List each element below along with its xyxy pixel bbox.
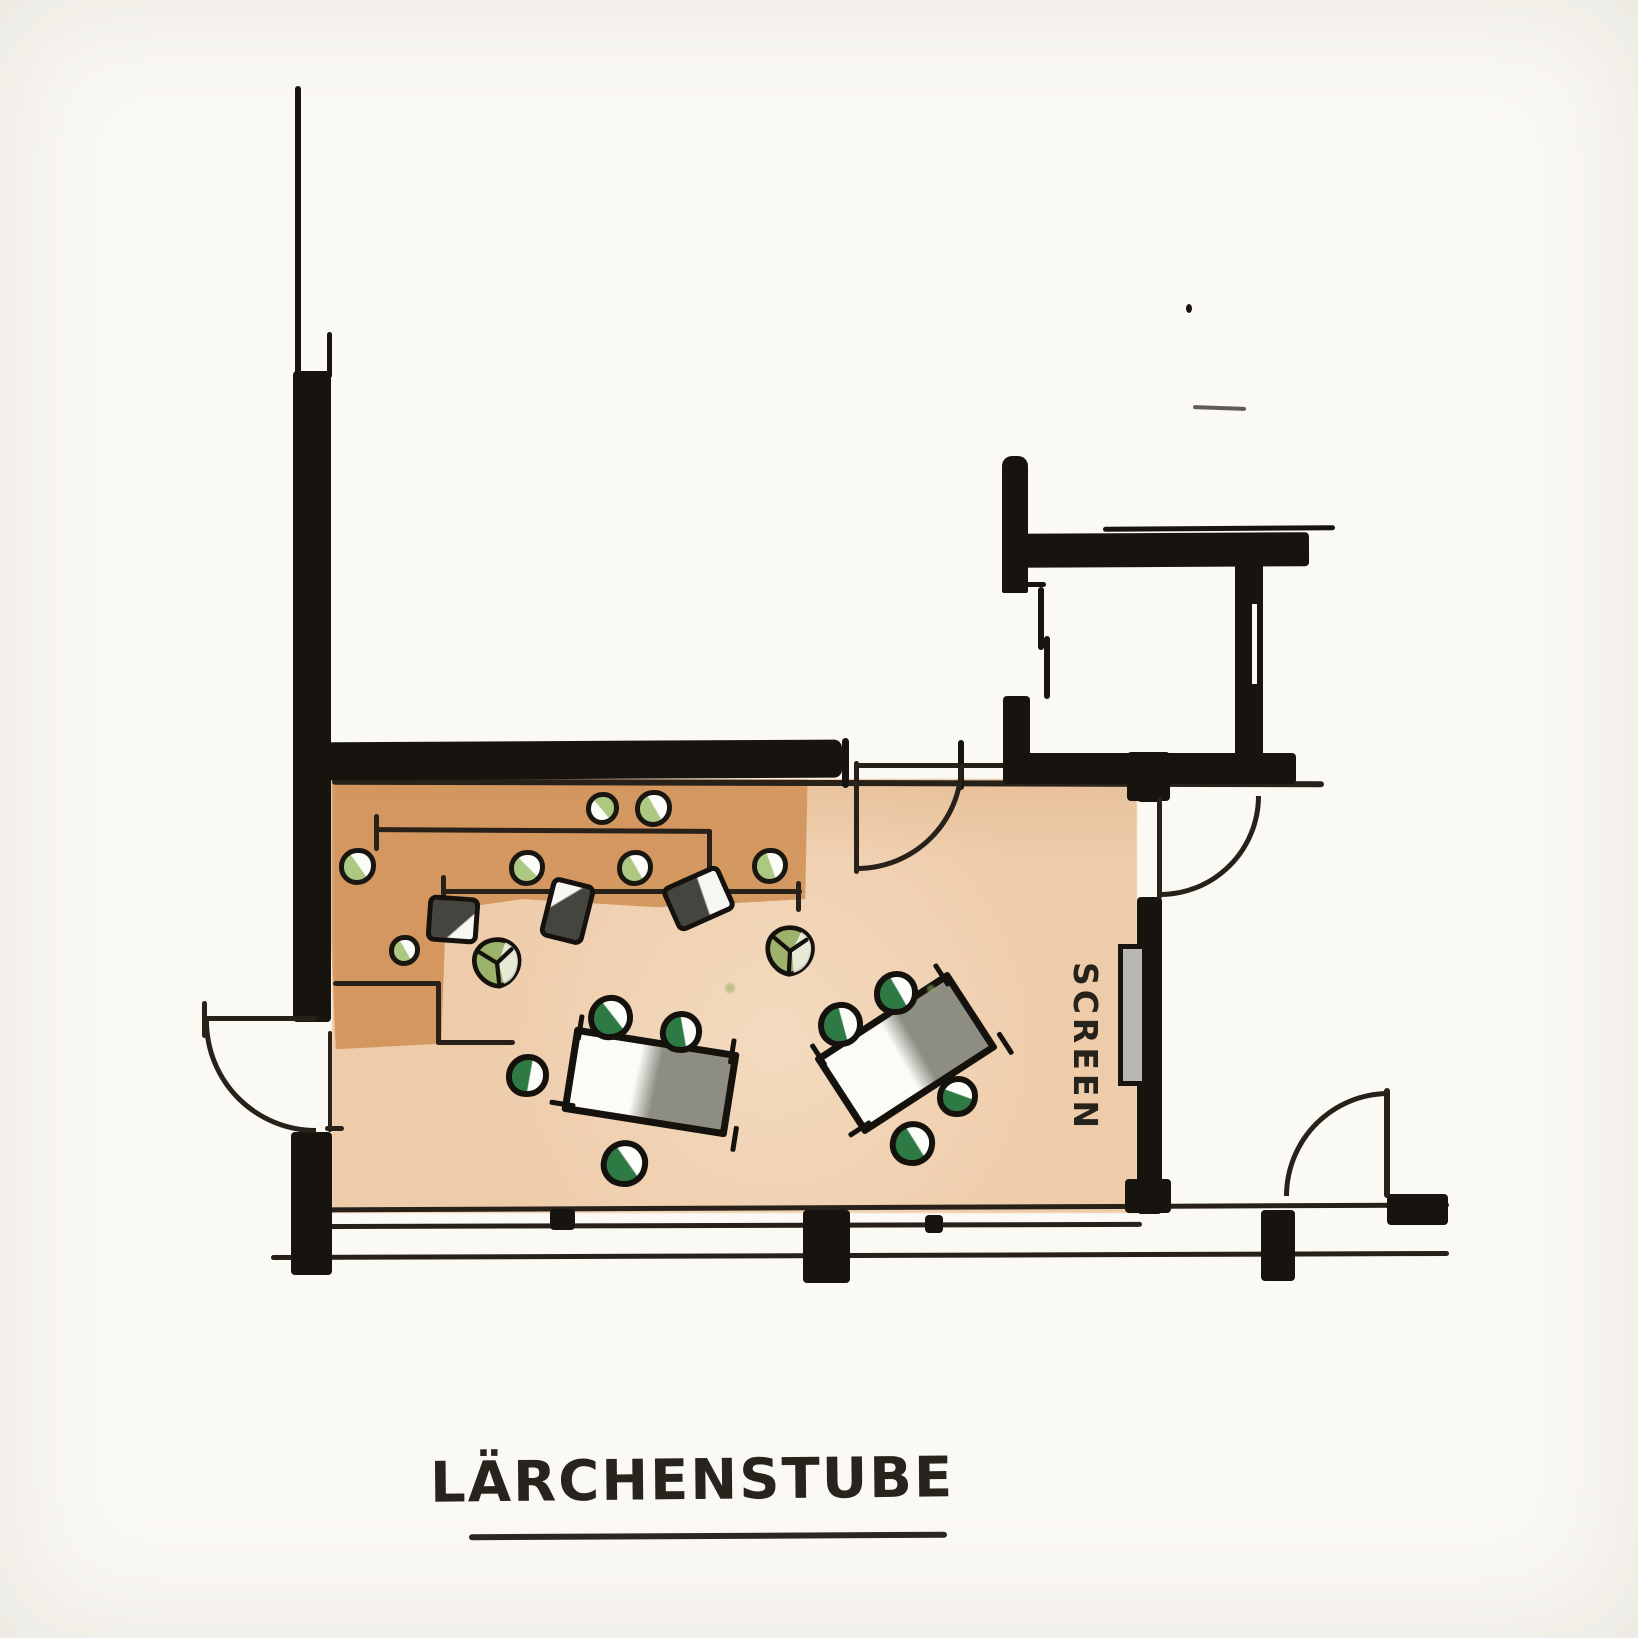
left-door-reveal: [328, 1031, 332, 1132]
wall-left-thin: [295, 86, 301, 378]
sketch-page: SCREEN LÄRCHENSTUBE: [0, 0, 1638, 1638]
left-door-tick: [325, 1126, 344, 1131]
wall-right-foot: [1125, 1179, 1171, 1213]
annex-topline: [1103, 525, 1335, 532]
chair: [874, 971, 918, 1015]
right-door-swing-arc: [1160, 796, 1261, 897]
plan-title: LÄRCHENSTUBE: [430, 1445, 951, 1515]
plant-cube: [761, 922, 820, 981]
bar-stool: [389, 935, 420, 966]
annex-wall-streak: [1252, 604, 1257, 684]
bottom-door-swing-arc: [1284, 1091, 1389, 1196]
bottom-pier: [1261, 1210, 1295, 1281]
bottom-pier: [1387, 1194, 1448, 1225]
counter-line-bottom: [441, 889, 802, 894]
screen-label: SCREEN: [1065, 937, 1105, 1157]
plant-cube-icon: [466, 932, 528, 994]
title-underline: [469, 1532, 947, 1541]
counter-tick: [796, 881, 801, 912]
annex-wall-top: [1005, 532, 1309, 568]
annex-wall-right: [1235, 563, 1263, 776]
bottom-pier: [550, 1209, 575, 1230]
annex-wall-left-upper: [1002, 456, 1028, 593]
wall-left-lower: [291, 1132, 332, 1275]
floor-speck: [725, 983, 735, 993]
ink-dash: [1193, 405, 1246, 411]
plant-cube-icon: [761, 922, 820, 981]
floor-speck: [927, 985, 935, 993]
annex-notch: [1026, 582, 1046, 587]
platform-edge: [436, 1040, 515, 1045]
bar-stool: [635, 790, 672, 827]
platform-edge: [333, 981, 440, 986]
wall-left-upper: [293, 371, 331, 1022]
door-post: [842, 738, 849, 788]
bottom-wall-line: [299, 1222, 1142, 1229]
plant-cube: [466, 932, 528, 994]
wall-top: [307, 740, 842, 781]
ink-dot: [1186, 304, 1192, 313]
bottom-pier: [803, 1210, 850, 1283]
left-door-swing-arc: [204, 1021, 316, 1133]
bar-stool: [586, 792, 619, 825]
chair: [506, 1054, 549, 1097]
platform-edge: [436, 981, 441, 1045]
bottom-pier: [925, 1215, 943, 1233]
bar-stool: [339, 848, 376, 885]
chair: [937, 1076, 978, 1117]
counter-tick: [374, 814, 379, 851]
annex-notch: [1044, 636, 1050, 699]
projection-screen: [1118, 944, 1142, 1086]
